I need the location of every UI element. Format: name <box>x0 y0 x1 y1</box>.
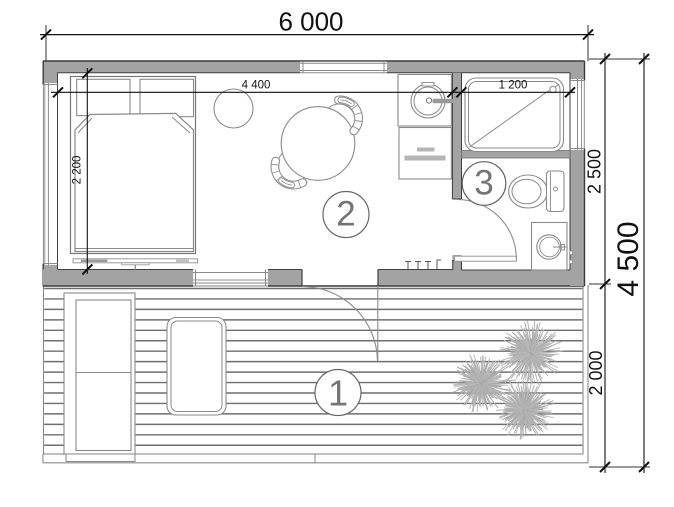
svg-text:4 400: 4 400 <box>242 80 271 92</box>
svg-text:2: 2 <box>336 195 355 234</box>
svg-text:1: 1 <box>328 373 348 414</box>
svg-text:2 500: 2 500 <box>584 149 604 194</box>
svg-text:1 200: 1 200 <box>499 80 528 92</box>
svg-text:4 500: 4 500 <box>612 221 645 296</box>
svg-text:2 000: 2 000 <box>586 350 606 395</box>
svg-text:3: 3 <box>474 164 493 203</box>
svg-text:6 000: 6 000 <box>278 7 343 37</box>
svg-text:2 200: 2 200 <box>72 156 84 185</box>
